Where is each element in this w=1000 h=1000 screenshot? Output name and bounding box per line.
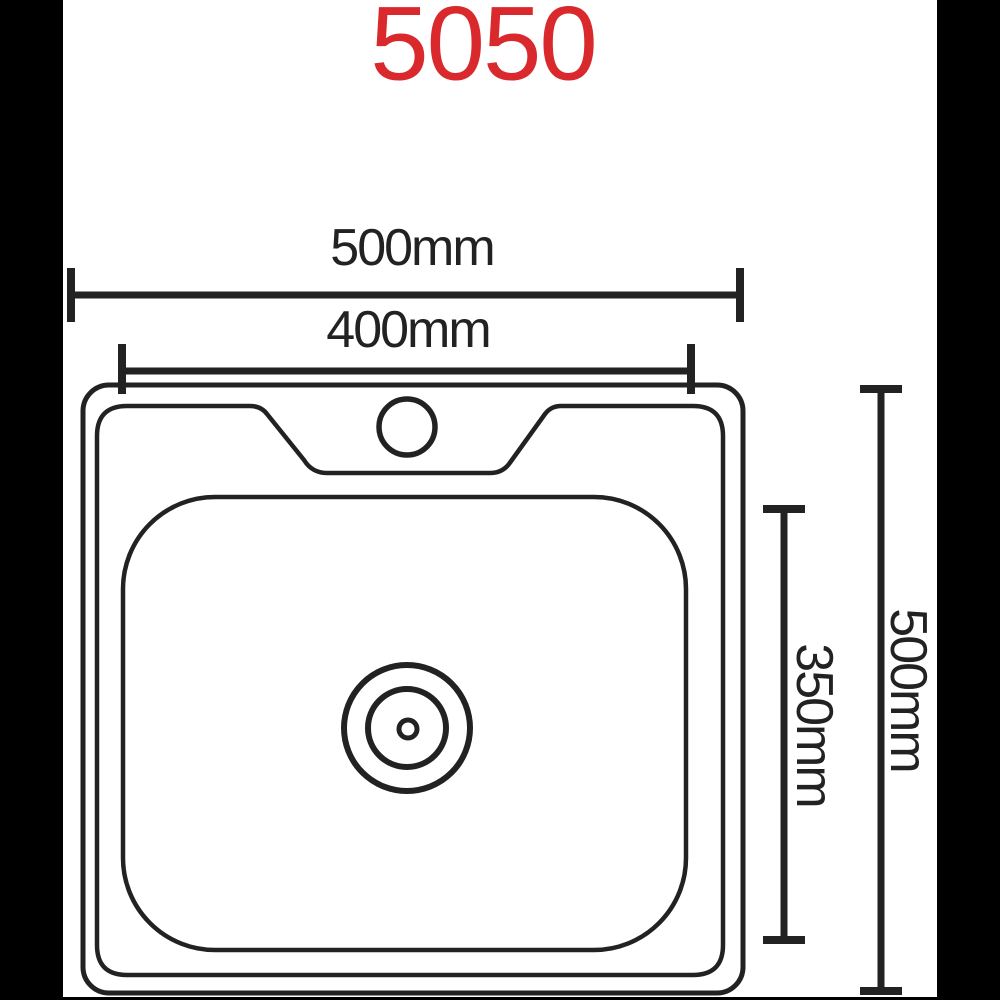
drain [344, 665, 470, 791]
dim-label-bowl-width: 400mm [326, 300, 489, 360]
dim-label-overall-depth: 500mm [878, 608, 938, 771]
drain-outer-circle [344, 665, 470, 791]
drain-center-hole [399, 720, 417, 738]
faucet-hole [379, 399, 435, 455]
dim-label-overall-width: 500mm [330, 218, 493, 278]
dim-label-bowl-depth: 350mm [784, 643, 844, 806]
drain-middle-circle [368, 689, 446, 767]
sink-technical-drawing [0, 0, 1000, 1000]
sink-diagram-canvas: 5050 [0, 0, 1000, 1000]
